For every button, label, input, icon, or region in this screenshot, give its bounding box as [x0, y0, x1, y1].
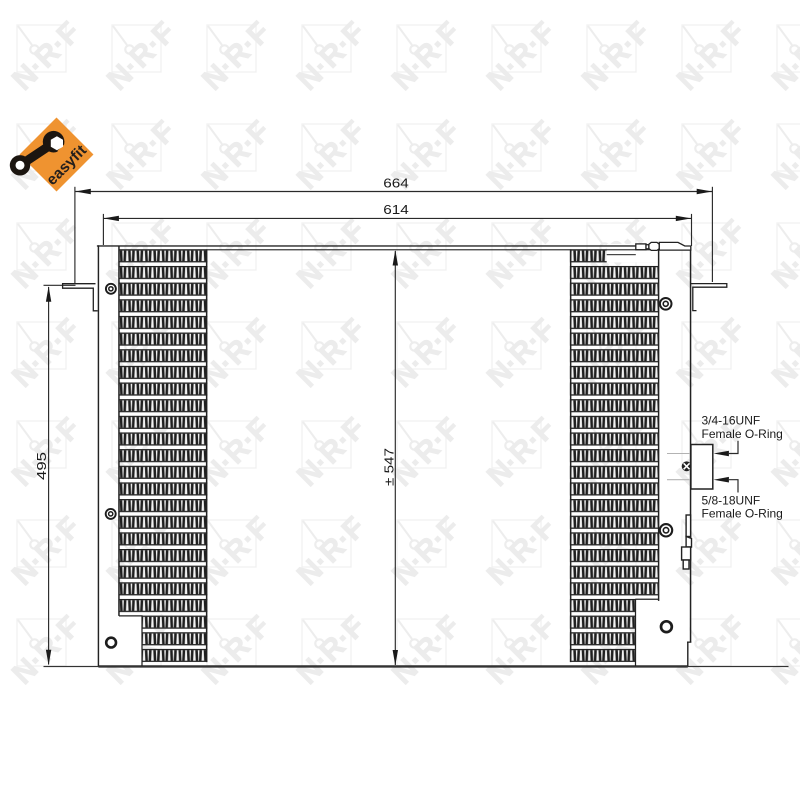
svg-text:± 547: ± 547: [381, 448, 396, 486]
svg-text:Female O-Ring: Female O-Ring: [702, 427, 783, 441]
svg-text:664: 664: [383, 176, 409, 191]
svg-text:495: 495: [34, 452, 49, 480]
svg-text:5/8-18UNF: 5/8-18UNF: [702, 494, 761, 508]
svg-text:Female O-Ring: Female O-Ring: [702, 507, 783, 521]
svg-text:614: 614: [383, 202, 409, 217]
svg-text:3/4-16UNF: 3/4-16UNF: [702, 414, 761, 428]
